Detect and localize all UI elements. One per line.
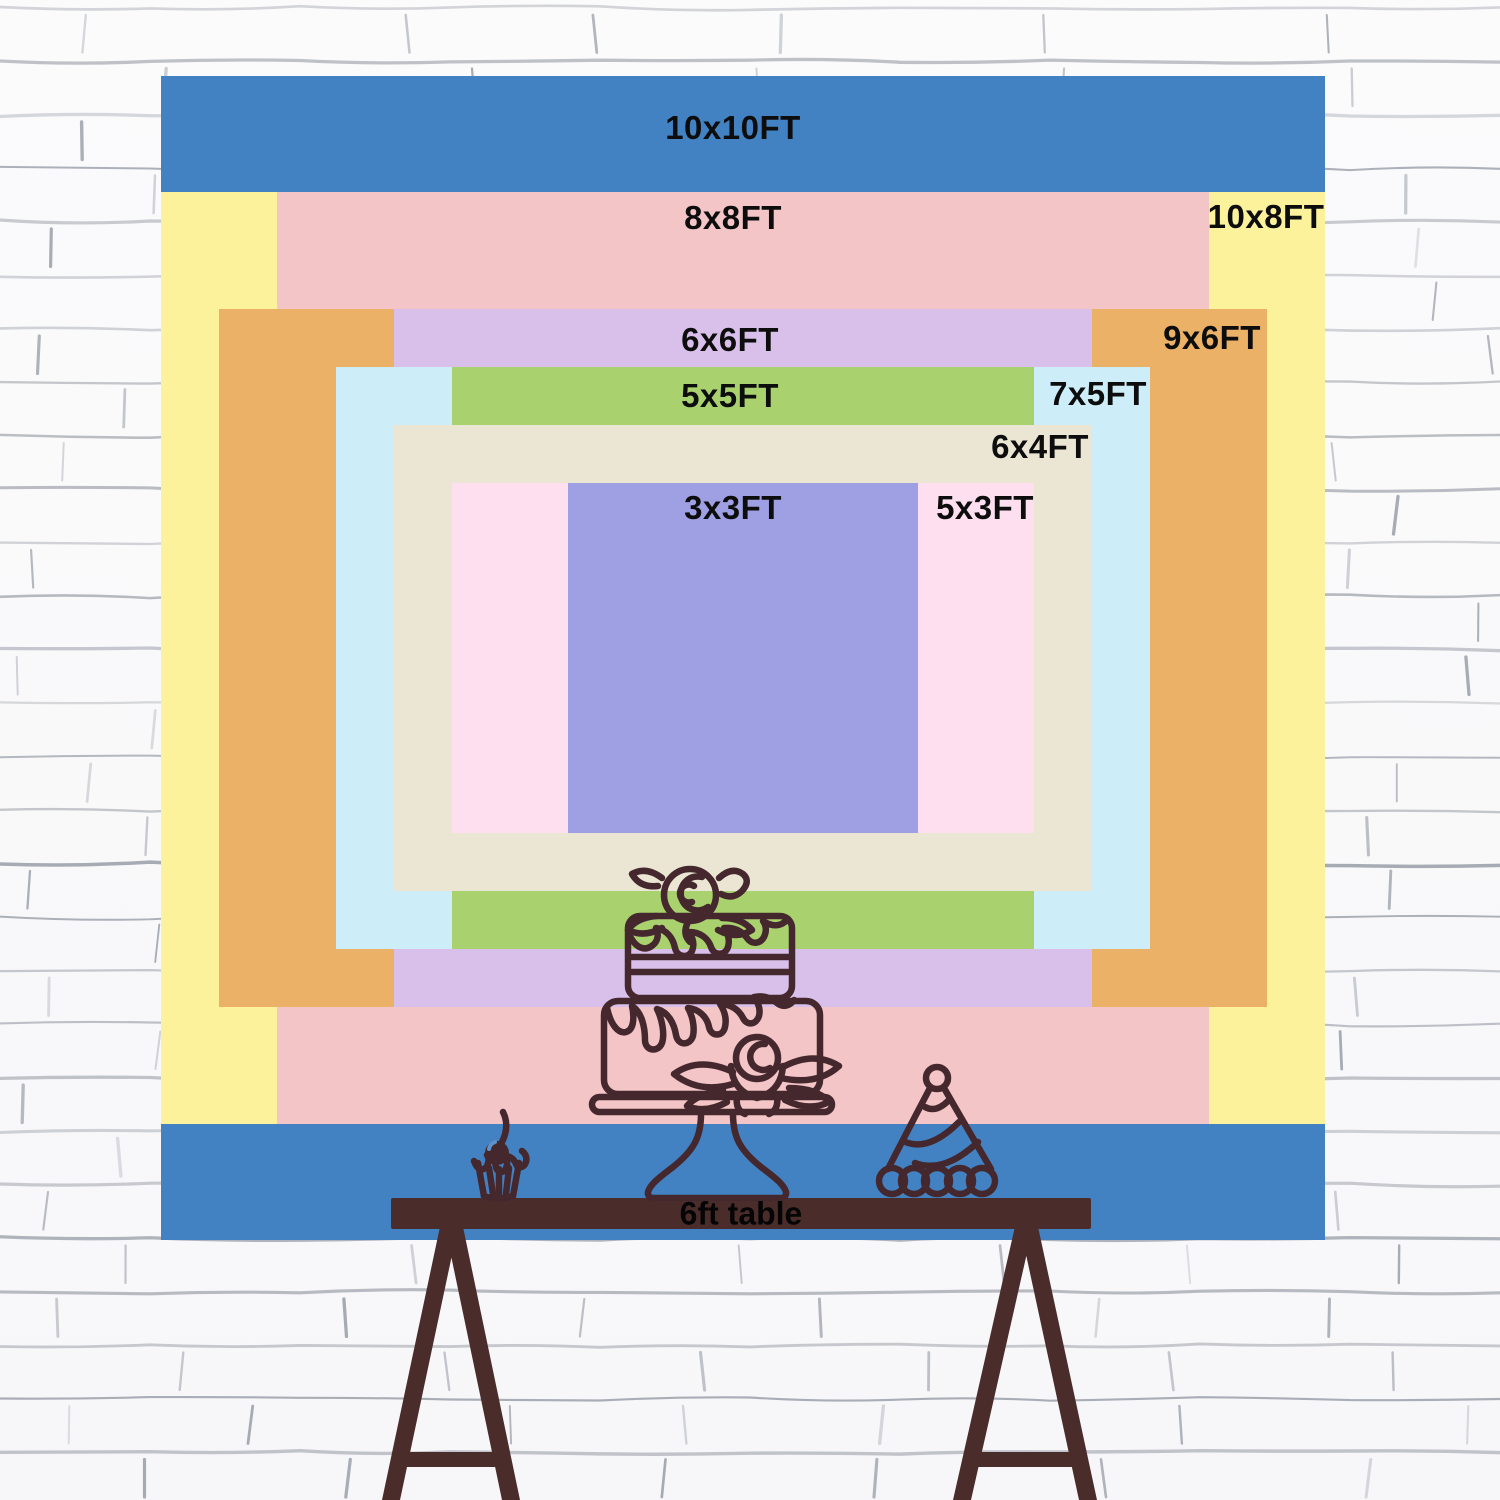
backdrop-size-chart: 10x10FT10x8FT8x8FT9x6FT6x6FT7x5FT5x5FT6x… xyxy=(0,0,1500,1500)
table-right-trestle-leg xyxy=(953,1222,1097,1500)
illustration-layer xyxy=(0,0,1500,1500)
cake-top-icing-drip xyxy=(629,919,788,956)
table-size-label: 6ft table xyxy=(680,1196,803,1233)
cupcake-illustration xyxy=(474,1112,526,1199)
hat-scalloped-trim xyxy=(879,1168,995,1194)
table-left-trestle-leg xyxy=(382,1222,520,1500)
tiered-cake-illustration xyxy=(592,869,839,1198)
cake-stand-pedestal xyxy=(648,1114,786,1198)
cherry-stem xyxy=(502,1112,506,1142)
table-illustration xyxy=(382,1198,1097,1500)
hat-stripe xyxy=(925,1101,948,1109)
party-hat-illustration xyxy=(879,1067,995,1194)
front-flower xyxy=(674,1037,839,1114)
